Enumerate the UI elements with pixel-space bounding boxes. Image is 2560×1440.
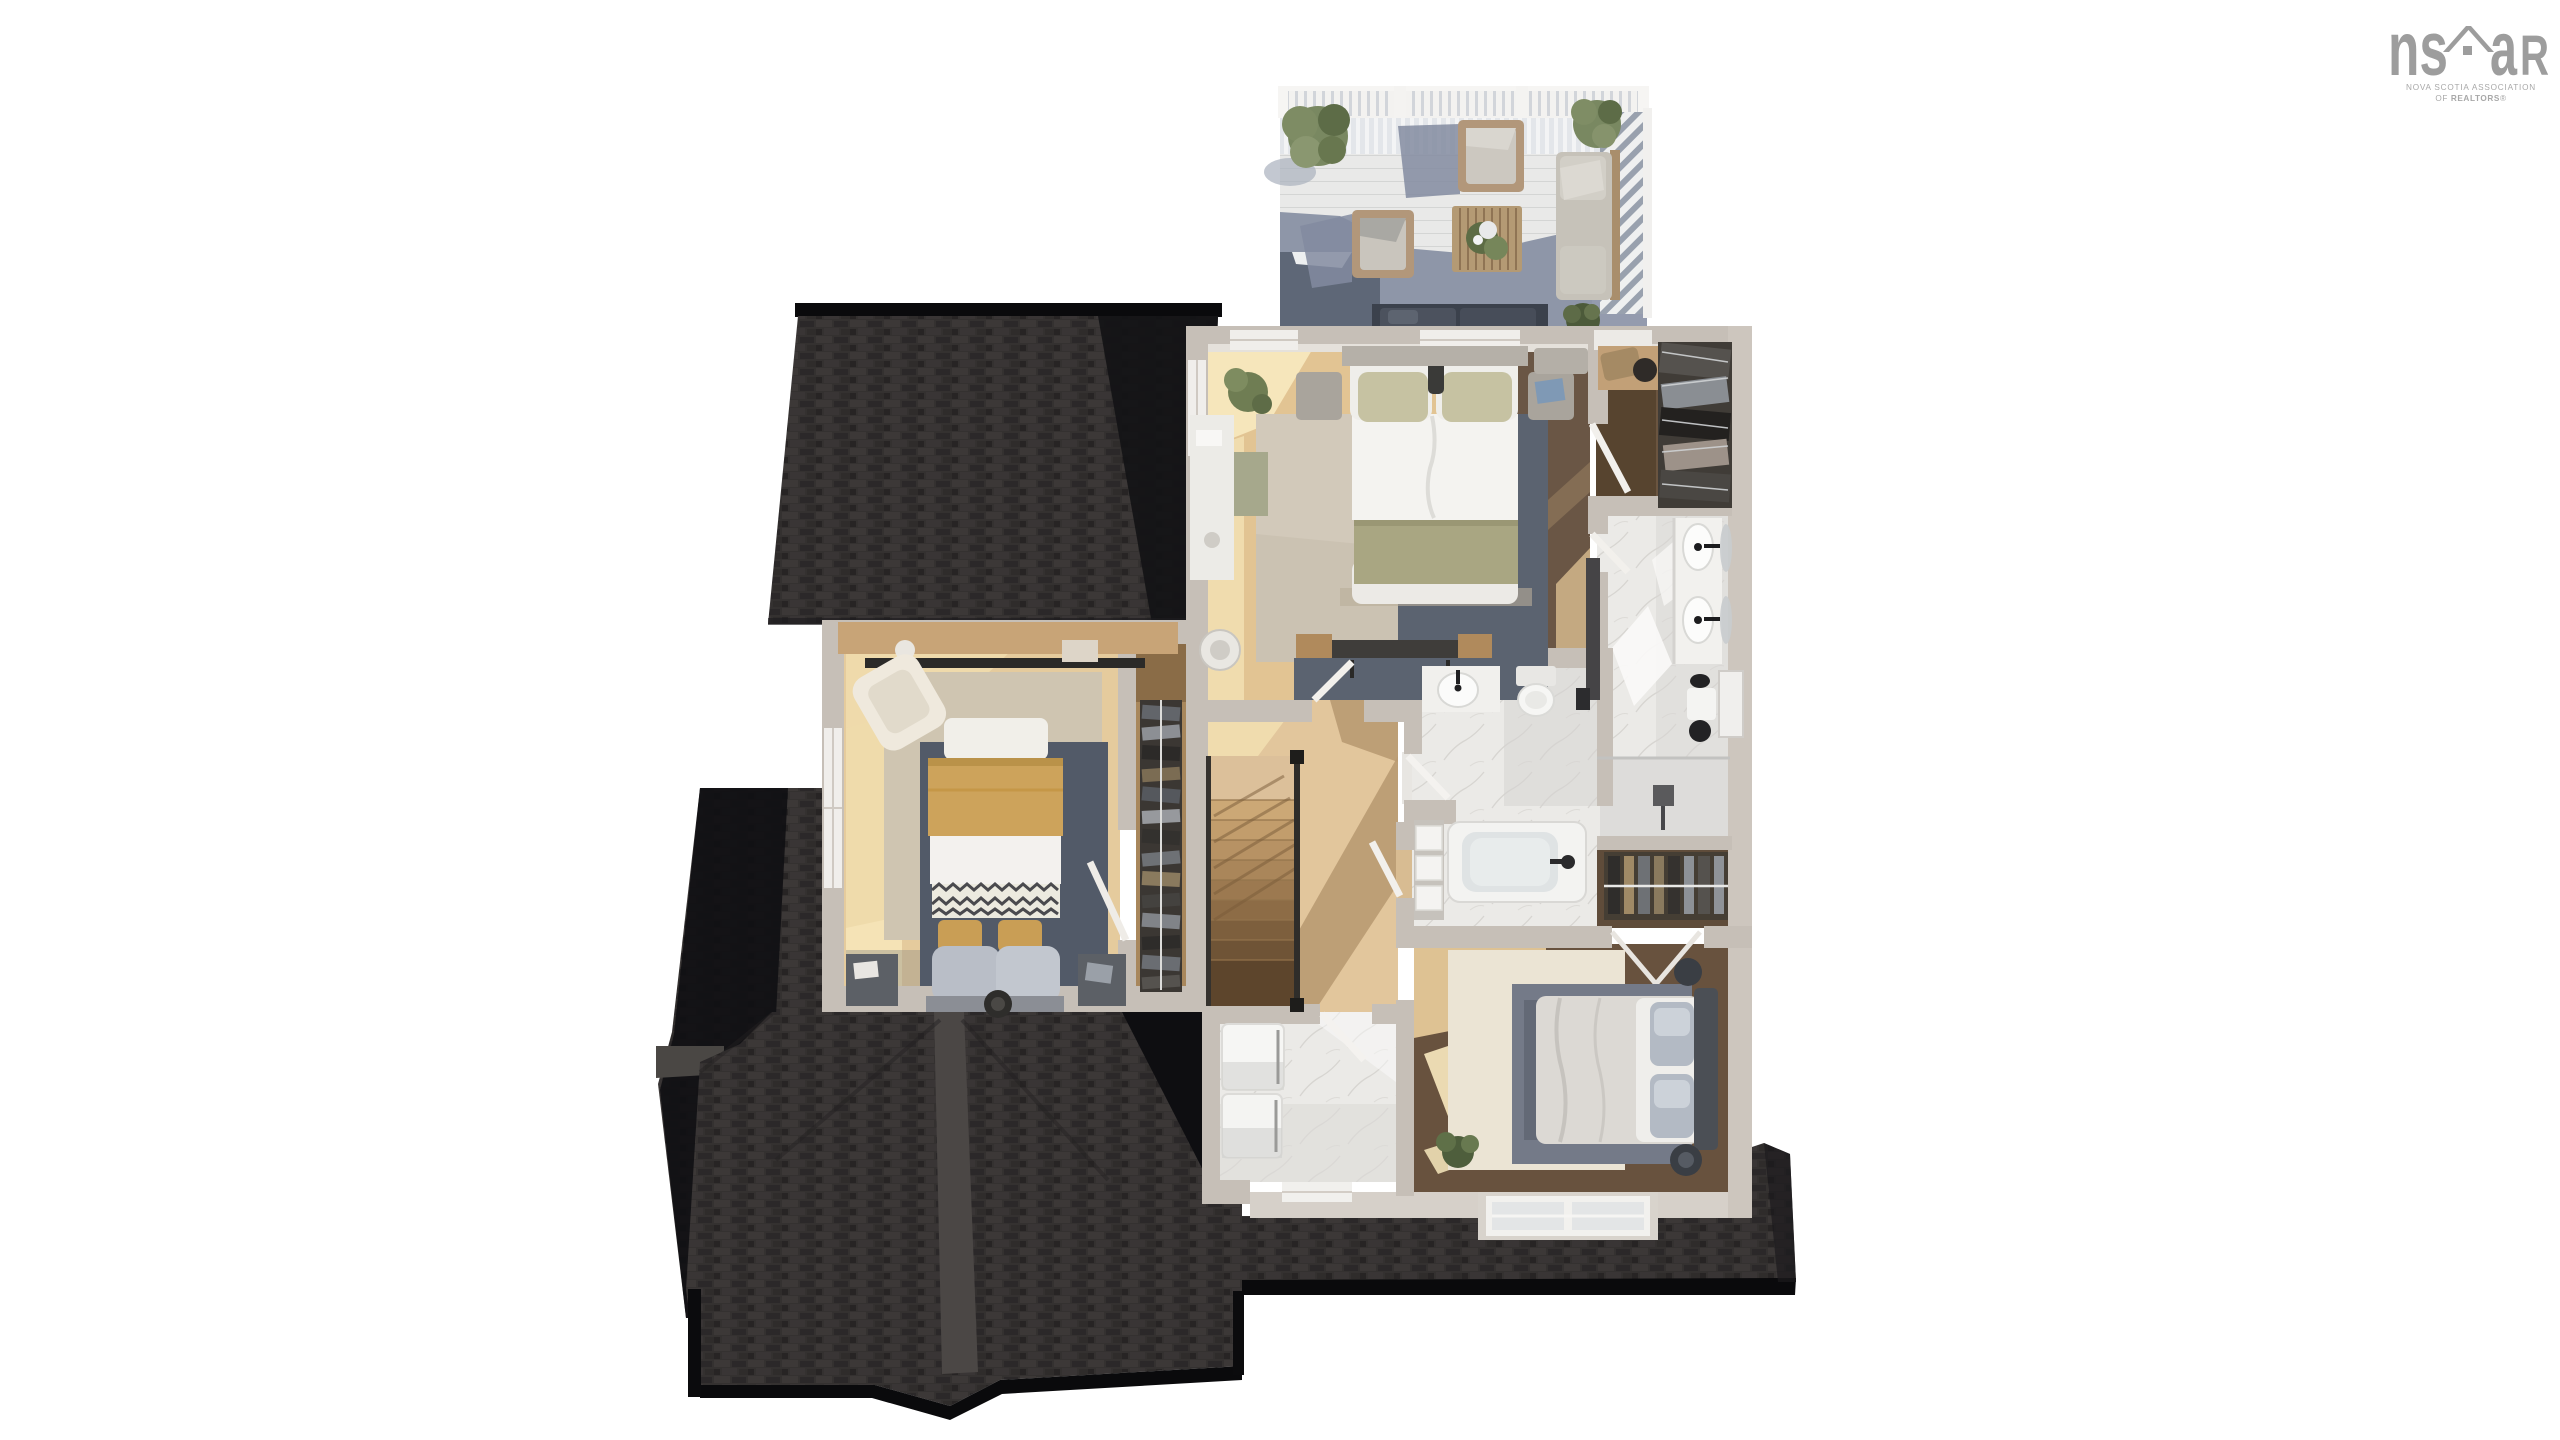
svg-text:NOVA SCOTIA ASSOCIATION: NOVA SCOTIA ASSOCIATION	[2406, 83, 2536, 92]
svg-text:R: R	[2520, 24, 2549, 88]
svg-text:OF REALTORS®: OF REALTORS®	[2435, 94, 2506, 103]
svg-text:a: a	[2490, 7, 2517, 92]
svg-text:ns: ns	[2388, 7, 2448, 92]
